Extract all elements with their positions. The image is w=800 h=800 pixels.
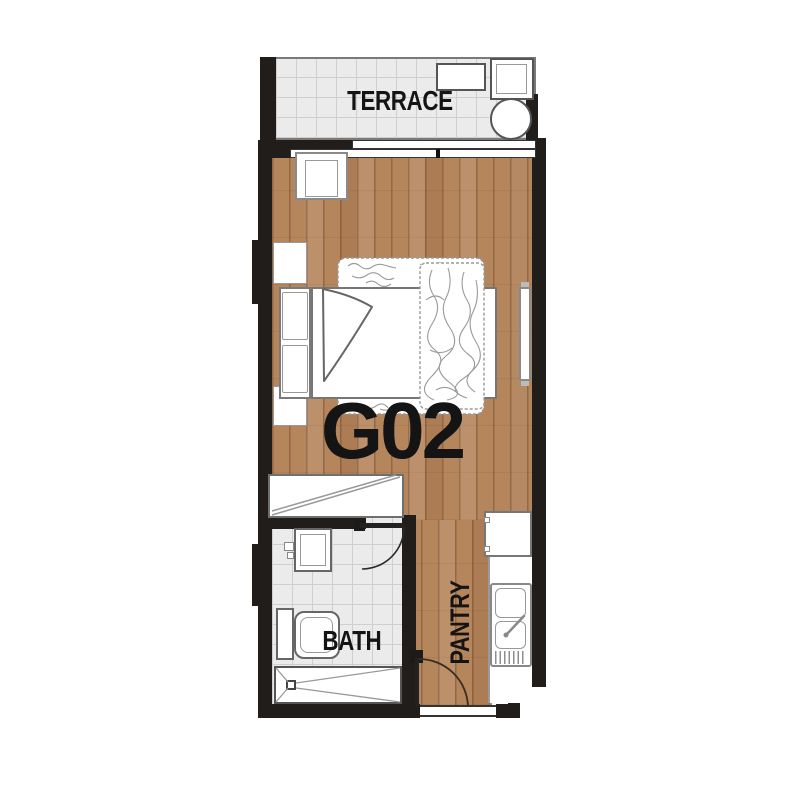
wall-shelf-cap-top	[521, 282, 529, 287]
kitchen-sink-bowl-top	[495, 588, 526, 618]
pillow-bottom	[282, 345, 308, 393]
wardrobe	[268, 474, 404, 518]
terrace-label-text: TERRACE	[347, 85, 452, 117]
fridge-hinge-tick-bottom	[484, 546, 490, 552]
pantry-label-text: PANTRY	[445, 581, 476, 665]
bed-mattress	[311, 287, 497, 399]
toilet-tank	[276, 608, 294, 660]
pantry-label: PANTRY	[445, 553, 475, 693]
bottom-wall-left	[258, 704, 420, 718]
entry-door-leaf	[415, 658, 419, 706]
bath-pantry-wall	[402, 515, 416, 705]
terrace-label: TERRACE	[322, 86, 477, 116]
shower-drain	[286, 680, 296, 690]
wall-shelf-cap-bottom	[521, 381, 529, 386]
bath-sink-tap	[284, 542, 294, 551]
wall-shelf	[519, 287, 531, 381]
nightstand-top	[273, 242, 307, 284]
unit-number-text: G02	[321, 385, 463, 477]
kitchen-drainboard	[495, 651, 526, 664]
right-wall	[532, 138, 546, 678]
terrace-left-wall	[260, 57, 276, 142]
left-wall-step-upper	[252, 240, 258, 304]
sliding-door-divider	[436, 149, 440, 158]
floor-plan-canvas: TERRACE G02 BATH PANTRY	[0, 0, 800, 800]
pillow-top	[282, 292, 308, 340]
unit-number-label: G02	[297, 390, 487, 472]
fridge	[484, 511, 532, 557]
left-wall	[258, 140, 272, 718]
bath-label: BATH	[306, 627, 398, 655]
bath-sink-tap-handle	[287, 552, 294, 559]
entry-threshold	[420, 705, 496, 717]
sliding-door-panel-right	[352, 140, 536, 149]
armchair-seat	[496, 64, 527, 94]
fridge-hinge-tick-top	[484, 517, 490, 523]
corner-cabinet-top	[305, 160, 338, 197]
left-wall-step-lower	[252, 544, 258, 606]
bath-sink-basin	[300, 534, 326, 566]
bath-label-text: BATH	[323, 625, 382, 657]
bath-door-leaf	[360, 523, 404, 528]
kitchen-sink-bowl-bottom	[495, 621, 526, 649]
round-table	[490, 98, 532, 140]
